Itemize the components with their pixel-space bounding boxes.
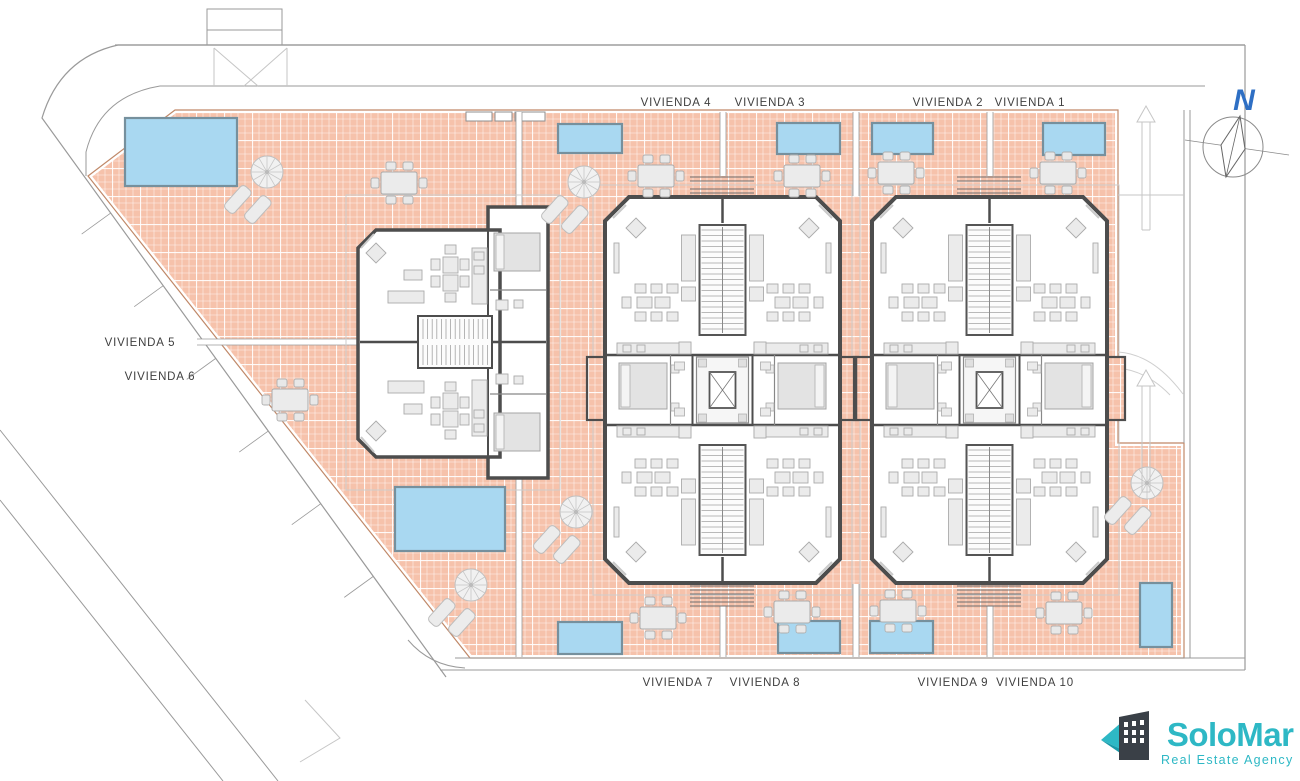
furniture <box>460 259 469 270</box>
parking-tick <box>134 286 163 307</box>
chair <box>371 178 379 188</box>
furniture <box>1066 487 1077 496</box>
chair <box>900 186 910 194</box>
pool-water <box>558 622 622 654</box>
furniture <box>474 252 484 260</box>
furniture <box>682 479 696 493</box>
chair <box>662 597 672 605</box>
furniture <box>1017 287 1031 301</box>
pool-water <box>872 123 933 154</box>
parking-tick <box>82 213 111 234</box>
furniture <box>667 459 678 468</box>
bed-pillow <box>621 365 630 407</box>
furniture <box>1093 507 1098 537</box>
chair <box>643 189 653 197</box>
chair <box>628 171 636 181</box>
furniture <box>775 472 790 483</box>
furniture <box>793 297 808 308</box>
building-block <box>854 185 1125 595</box>
furniture <box>934 487 945 496</box>
chair <box>277 413 287 421</box>
chair <box>789 155 799 163</box>
chair <box>868 168 876 178</box>
logo-building-icon <box>1100 708 1154 766</box>
furniture <box>826 243 831 273</box>
pool <box>870 621 933 653</box>
furniture <box>890 345 898 352</box>
parasol-pole <box>1145 481 1149 485</box>
chair <box>1051 626 1061 634</box>
furniture <box>814 345 822 352</box>
vivienda-label-6: VIVIENDA 6 <box>125 371 196 383</box>
furniture <box>902 284 913 293</box>
furniture <box>623 345 631 352</box>
furniture <box>1034 487 1045 496</box>
furniture <box>635 459 646 468</box>
furniture <box>622 472 631 483</box>
furniture <box>767 459 778 468</box>
chair <box>885 590 895 598</box>
furniture <box>651 284 662 293</box>
furniture <box>750 499 764 545</box>
logo-building-shape <box>1119 711 1149 760</box>
walkway <box>720 606 726 657</box>
chair <box>796 591 806 599</box>
site-plan-svg: VIVIENDA 4VIVIENDA 3VIVIENDA 2VIVIENDA 1… <box>0 0 1300 781</box>
walkway <box>853 584 859 657</box>
table-top <box>774 601 810 623</box>
furniture <box>826 507 831 537</box>
bath-fixture <box>761 408 771 416</box>
logo-windows <box>1124 720 1144 743</box>
furniture <box>637 428 645 435</box>
furniture <box>1093 243 1098 273</box>
chair <box>419 178 427 188</box>
pool-water <box>125 118 237 186</box>
bath-fixture <box>761 362 771 370</box>
furniture <box>799 312 810 321</box>
furniture <box>637 345 645 352</box>
parking-tick <box>239 431 268 452</box>
table-top <box>880 600 916 622</box>
table-top <box>1040 162 1076 184</box>
core-box <box>1006 414 1014 422</box>
furniture <box>902 459 913 468</box>
chair <box>1068 592 1078 600</box>
chair <box>764 607 772 617</box>
parking-tick <box>292 504 321 525</box>
furniture <box>655 472 670 483</box>
chair <box>1036 608 1044 618</box>
walkway <box>987 606 993 657</box>
pool <box>1140 583 1172 647</box>
chair <box>774 171 782 181</box>
furniture <box>934 284 945 293</box>
pool-water <box>1043 123 1105 155</box>
pool <box>777 123 840 154</box>
pool <box>1043 123 1105 155</box>
chair <box>403 162 413 170</box>
balcony-wing <box>1107 357 1125 420</box>
parking-tick <box>344 576 373 597</box>
furniture <box>679 426 691 438</box>
building-block <box>587 185 858 595</box>
furniture <box>946 342 958 354</box>
vivienda-label-1: VIVIENDA 4 <box>641 97 712 109</box>
furniture <box>904 472 919 483</box>
chair <box>1062 152 1072 160</box>
core-box <box>739 359 747 367</box>
furniture <box>799 284 810 293</box>
chair <box>662 631 672 639</box>
parasol-pole <box>469 583 473 587</box>
furniture <box>1067 428 1075 435</box>
furniture <box>474 266 484 274</box>
chair <box>645 631 655 639</box>
chair <box>645 597 655 605</box>
chair <box>678 613 686 623</box>
compass-north-label: N <box>1233 84 1256 117</box>
chair <box>1045 152 1055 160</box>
furniture <box>667 284 678 293</box>
furniture <box>496 300 508 310</box>
furniture <box>793 472 808 483</box>
arrow-head <box>1137 106 1155 122</box>
pool-water <box>777 123 840 154</box>
furniture <box>623 428 631 435</box>
chair <box>883 186 893 194</box>
chair <box>386 162 396 170</box>
logo-tagline: Real Estate Agency <box>1161 753 1294 767</box>
furniture <box>431 276 440 287</box>
furniture <box>800 428 808 435</box>
chair <box>806 155 816 163</box>
furniture <box>949 287 963 301</box>
furniture <box>682 499 696 545</box>
bed-pillow <box>815 365 824 407</box>
furniture <box>443 393 458 409</box>
table-top <box>272 389 308 411</box>
bed-pillow <box>496 415 504 449</box>
pool-water <box>395 487 505 551</box>
furniture <box>651 487 662 496</box>
chair <box>779 591 789 599</box>
chair <box>885 624 895 632</box>
chair <box>660 189 670 197</box>
furniture <box>682 235 696 281</box>
street-far-diagonal-1 <box>0 430 278 781</box>
furniture <box>445 382 456 391</box>
furniture <box>1066 459 1077 468</box>
furniture <box>783 487 794 496</box>
furniture <box>1066 312 1077 321</box>
chair <box>902 624 912 632</box>
street-far-diagonal-2 <box>0 500 223 781</box>
furniture <box>1067 345 1075 352</box>
walkway <box>853 112 859 196</box>
furniture <box>1017 499 1031 545</box>
chair <box>262 395 270 405</box>
chair <box>660 155 670 163</box>
furniture <box>881 243 886 273</box>
table-top <box>784 165 820 187</box>
furniture <box>750 479 764 493</box>
furniture <box>1081 297 1090 308</box>
furniture <box>918 284 929 293</box>
furniture <box>754 342 766 354</box>
walkway <box>987 112 993 176</box>
furniture <box>614 243 619 273</box>
edge-box <box>495 112 512 121</box>
furniture <box>667 312 678 321</box>
furniture <box>814 472 823 483</box>
furniture <box>474 424 484 432</box>
furniture <box>1081 428 1089 435</box>
chair <box>1068 626 1078 634</box>
furniture <box>750 235 764 281</box>
furniture <box>404 270 422 280</box>
chair <box>1078 168 1086 178</box>
bath-fixture <box>942 408 952 416</box>
furniture <box>934 312 945 321</box>
furniture <box>637 472 652 483</box>
furniture <box>1021 426 1033 438</box>
furniture <box>889 297 898 308</box>
bed-pillow <box>888 365 897 407</box>
furniture <box>1034 459 1045 468</box>
chair <box>918 606 926 616</box>
parasol-pole <box>574 510 578 514</box>
furniture <box>918 312 929 321</box>
balcony-wing <box>587 357 605 420</box>
furniture <box>754 426 766 438</box>
core-box <box>966 414 974 422</box>
chair <box>870 606 878 616</box>
entry-structure <box>207 9 282 30</box>
parasol-pole <box>265 170 269 174</box>
vivienda-label-9: VIVIENDA 9 <box>918 677 989 689</box>
pool <box>125 118 237 186</box>
furniture <box>922 472 937 483</box>
furniture <box>679 342 691 354</box>
street-zigzag <box>300 700 340 762</box>
furniture <box>800 345 808 352</box>
furniture <box>460 397 469 408</box>
bath-fixture <box>942 362 952 370</box>
furniture <box>655 297 670 308</box>
furniture <box>799 459 810 468</box>
chair <box>676 171 684 181</box>
furniture <box>783 284 794 293</box>
furniture <box>1034 284 1045 293</box>
furniture <box>682 287 696 301</box>
chair <box>1045 186 1055 194</box>
pool <box>395 487 505 551</box>
vivienda-label-8: VIVIENDA 8 <box>730 677 801 689</box>
furniture <box>635 312 646 321</box>
furniture <box>460 414 469 425</box>
chair <box>403 196 413 204</box>
furniture <box>1050 487 1061 496</box>
vivienda-label-3: VIVIENDA 2 <box>913 97 984 109</box>
table-top <box>640 607 676 629</box>
furniture <box>918 487 929 496</box>
chair <box>812 607 820 617</box>
furniture <box>750 287 764 301</box>
pool <box>558 622 622 654</box>
compass-rose: N <box>1178 83 1298 195</box>
chair <box>1062 186 1072 194</box>
furniture <box>934 459 945 468</box>
furniture <box>1017 235 1031 281</box>
furniture <box>496 374 508 384</box>
core-box <box>1006 359 1014 367</box>
furniture <box>904 345 912 352</box>
furniture <box>445 293 456 302</box>
furniture <box>814 428 822 435</box>
furniture <box>651 459 662 468</box>
chair <box>386 196 396 204</box>
arrow-head <box>1137 370 1155 386</box>
pool <box>872 123 933 154</box>
furniture <box>431 397 440 408</box>
vivienda-label-10: VIVIENDA 10 <box>996 677 1074 689</box>
furniture <box>1050 284 1061 293</box>
furniture <box>443 275 458 291</box>
vivienda-label-5: VIVIENDA 5 <box>105 337 176 349</box>
edge-box <box>466 112 492 121</box>
agency-logo: SoloMar Real Estate Agency <box>1100 708 1294 767</box>
furniture <box>1050 312 1061 321</box>
furniture <box>460 276 469 287</box>
bath-fixture <box>1028 408 1038 416</box>
furniture <box>946 426 958 438</box>
furniture <box>635 487 646 496</box>
walkway <box>197 339 358 345</box>
core-box <box>699 414 707 422</box>
table-top <box>381 172 417 194</box>
chair <box>277 379 287 387</box>
furniture <box>651 312 662 321</box>
furniture <box>637 297 652 308</box>
furniture <box>767 487 778 496</box>
furniture <box>902 312 913 321</box>
chair <box>310 395 318 405</box>
furniture <box>902 487 913 496</box>
chair <box>643 155 653 163</box>
parasol-pole <box>582 180 586 184</box>
furniture <box>445 430 456 439</box>
table-top <box>878 162 914 184</box>
furniture <box>949 479 963 493</box>
furniture <box>799 487 810 496</box>
table-top <box>1046 602 1082 624</box>
core-box <box>699 359 707 367</box>
furniture <box>445 245 456 254</box>
furniture <box>388 381 424 393</box>
logo-text-block: SoloMar Real Estate Agency <box>1161 708 1294 767</box>
core-box <box>739 414 747 422</box>
furniture <box>889 472 898 483</box>
furniture <box>767 284 778 293</box>
vivienda-label-4: VIVIENDA 1 <box>995 97 1066 109</box>
chair <box>900 152 910 160</box>
furniture <box>431 259 440 270</box>
furniture <box>881 507 886 537</box>
walkway <box>720 112 726 176</box>
driveway-arrow <box>1137 106 1155 230</box>
pool <box>558 124 622 153</box>
furniture <box>918 459 929 468</box>
chair <box>796 625 806 633</box>
furniture <box>904 297 919 308</box>
floor-plan-canvas: VIVIENDA 4VIVIENDA 3VIVIENDA 2VIVIENDA 1… <box>0 0 1300 781</box>
furniture <box>1066 284 1077 293</box>
furniture <box>1042 472 1057 483</box>
chair <box>1084 608 1092 618</box>
chair <box>294 379 304 387</box>
furniture <box>622 297 631 308</box>
furniture <box>1050 459 1061 468</box>
furniture <box>783 312 794 321</box>
chair <box>779 625 789 633</box>
chair <box>630 613 638 623</box>
furniture <box>1081 345 1089 352</box>
furniture <box>1081 472 1090 483</box>
chair <box>883 152 893 160</box>
chair <box>806 189 816 197</box>
core-box <box>966 359 974 367</box>
vivienda-label-7: VIVIENDA 7 <box>643 677 714 689</box>
furniture <box>949 235 963 281</box>
entry-line <box>244 48 287 86</box>
walkway <box>516 112 522 206</box>
furniture <box>404 404 422 414</box>
furniture <box>1017 479 1031 493</box>
furniture <box>1042 297 1057 308</box>
furniture <box>614 507 619 537</box>
furniture <box>474 410 484 418</box>
furniture <box>1060 297 1075 308</box>
furniture <box>1034 312 1045 321</box>
pool-water <box>1140 583 1172 647</box>
bath-fixture <box>1028 362 1038 370</box>
bed-pillow <box>496 235 504 269</box>
bed-pillow <box>1082 365 1091 407</box>
pool-water <box>558 124 622 153</box>
vivienda-label-2: VIVIENDA 3 <box>735 97 806 109</box>
chair <box>1030 168 1038 178</box>
furniture <box>635 284 646 293</box>
furniture <box>514 300 523 308</box>
furniture <box>431 414 440 425</box>
furniture <box>775 297 790 308</box>
bath-fixture <box>675 408 685 416</box>
furniture <box>814 297 823 308</box>
chair <box>1051 592 1061 600</box>
building-duplex <box>346 195 560 490</box>
bath-fixture <box>675 362 685 370</box>
pool-water <box>870 621 933 653</box>
chair <box>294 413 304 421</box>
walkway <box>516 479 522 657</box>
furniture <box>388 291 424 303</box>
furniture <box>1021 342 1033 354</box>
table-top <box>638 165 674 187</box>
furniture <box>767 312 778 321</box>
furniture <box>443 411 458 427</box>
furniture <box>1060 472 1075 483</box>
